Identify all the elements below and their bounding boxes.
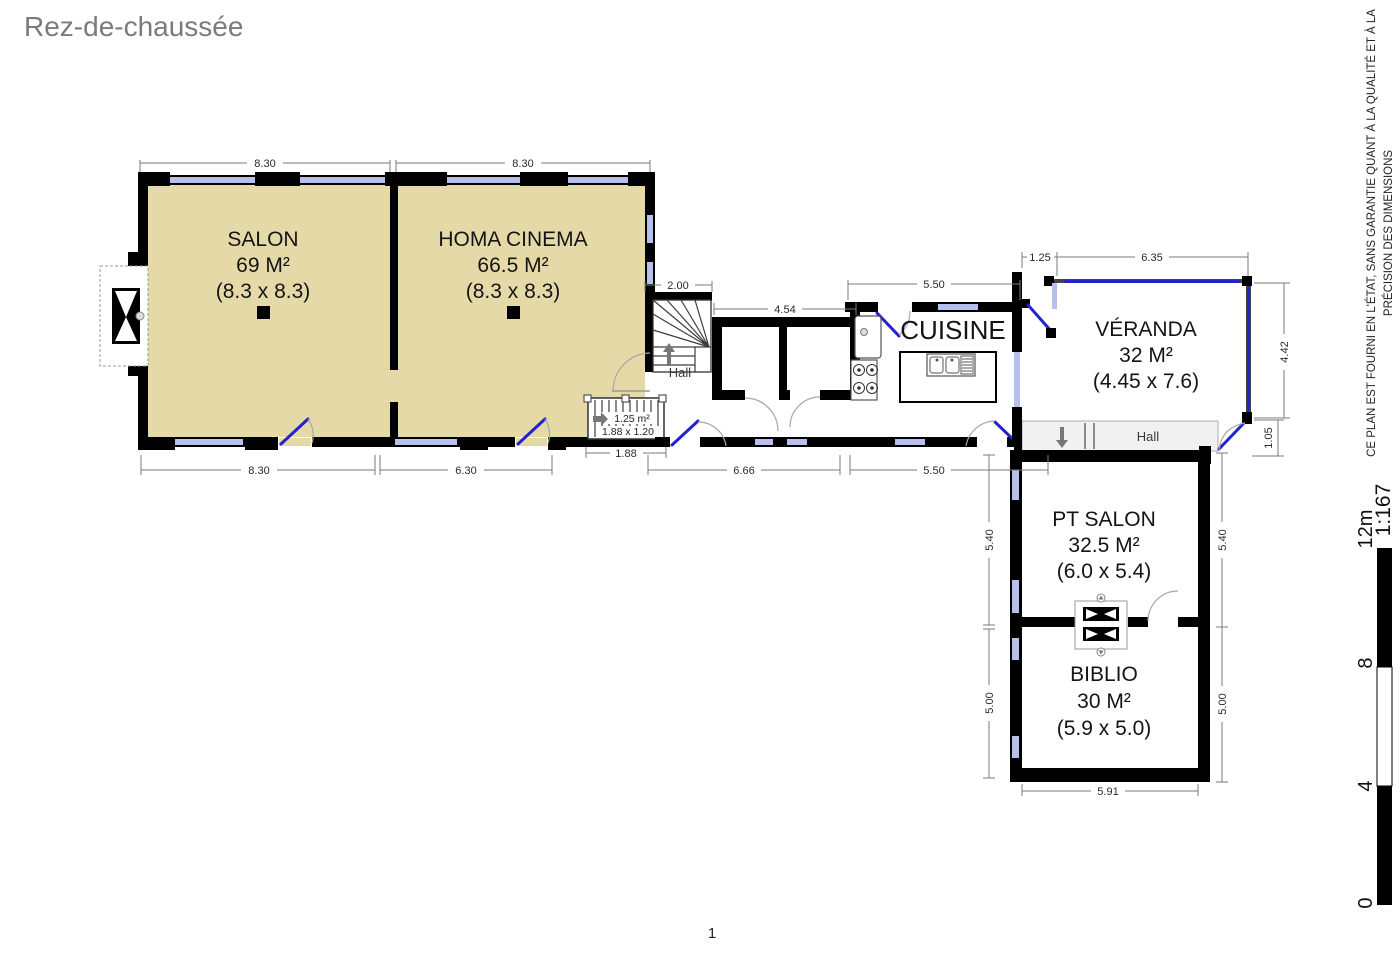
dim-veranda-top: 6.35 [1141,252,1162,264]
door-arc-pt-salon [1148,591,1178,621]
room-area-homa-cinema: 66.5 M² [477,254,548,277]
scale-tick-0: 0 [1355,897,1377,908]
dim-biblio-bottom: 5.91 [1097,786,1118,798]
salon-marker [257,306,270,319]
room-area-biblio: 30 M² [1077,690,1131,713]
disclaimer-line2: PRÉCISION DES DIMENSIONS [1382,150,1395,316]
center-closets [712,317,860,431]
window [938,304,978,310]
dim-corridor-left: 6.66 [733,465,754,477]
dim-closets-width: 4.54 [774,304,795,316]
scale-tick-4: 4 [1355,780,1377,791]
room-label-pt-salon: PT SALON [1052,508,1155,531]
disclaimer-line1: CE PLAN EST FOURNI EN L'ÉTAT, SANS GARAN… [1365,9,1378,457]
cuisine: CUISINE [845,302,1022,447]
dim-veranda-right: 4.42 [1279,341,1291,362]
window [1012,580,1019,613]
hall-right-label: Hall [1137,429,1160,444]
window [755,439,773,445]
dim-pt-salon-right: 5.40 [1217,529,1229,550]
dim-hall-right-h: 1.05 [1263,427,1275,448]
dim-veranda-offset: 1.25 [1029,252,1050,264]
door-arc-closet-right [790,397,820,427]
biblio: BIBLIO 30 M² (5.9 x 5.0) [1010,627,1210,782]
fridge-icon [855,316,881,358]
dim-pt-salon-left: 5.40 [984,529,996,550]
floor-plan-page: Rez-de-chaussée [0,0,1400,953]
scale-ratio: 1:167 [1372,484,1395,537]
window [568,177,628,183]
room-area-pt-salon: 32.5 M² [1068,534,1139,557]
door-veranda [1022,299,1056,338]
room-area-veranda: 32 M² [1119,344,1173,367]
stove-icon [851,360,878,400]
main-building: SALON 69 M² (8.3 x 8.3) HOMA CINEMA 66.5… [100,172,666,450]
window [1052,283,1057,309]
window [447,177,520,183]
dim-cinema-bottom: 6.30 [455,465,476,477]
dim-salon-bottom: 8.30 [248,465,269,477]
cinema-marker [507,306,520,319]
window [647,215,653,243]
window [170,177,255,183]
veranda: VÉRANDA 32 M² (4.45 x 7.6) [1012,272,1252,424]
window [895,439,925,445]
fireplace-salon [100,266,148,366]
room-label-homa-cinema: HOMA CINEMA [438,228,587,251]
dim-biblio-right: 5.00 [1217,693,1229,714]
door-arc-closet-left [745,398,778,431]
window [1012,638,1019,660]
fireplace-double [1075,594,1127,656]
page-title: Rez-de-chaussée [24,11,243,42]
dim-kitchen-top: 5.50 [923,279,944,291]
dim-salon-top: 8.30 [254,158,275,170]
dim-stair-width: 2.00 [667,280,688,292]
closet-area: 1.25 m² [614,413,650,425]
kitchen-island [900,352,996,402]
window [395,439,457,445]
dim-corridor-right: 5.50 [923,465,944,477]
closet-125: 1.25 m² 1.88 x 1.20 [584,395,666,439]
corridor [655,421,1022,447]
window [1014,352,1020,407]
room-label-biblio: BIBLIO [1070,663,1138,686]
room-label-veranda: VÉRANDA [1095,318,1197,341]
window [647,262,653,284]
room-size-biblio: (5.9 x 5.0) [1057,717,1152,740]
room-area-salon: 69 M² [236,254,290,277]
disclaimer: CE PLAN EST FOURNI EN L'ÉTAT, SANS GARAN… [1365,9,1395,457]
page-number: 1 [708,925,716,942]
scale-bar: 12m 1:167 8 4 0 [1355,484,1395,909]
hall-main-label: Hall [669,365,692,380]
window [787,439,807,445]
window [1012,470,1019,500]
window [175,439,243,445]
room-size-pt-salon: (6.0 x 5.4) [1057,560,1152,583]
staircase [653,300,711,372]
room-label-salon: SALON [227,228,298,251]
dim-closet-bottom: 1.88 [615,448,636,460]
room-size-homa-cinema: (8.3 x 8.3) [466,280,561,303]
window [300,177,385,183]
room-size-veranda: (4.45 x 7.6) [1093,370,1199,393]
room-size-salon: (8.3 x 8.3) [216,280,311,303]
pt-salon: PT SALON 32.5 M² (6.0 x 5.4) [1010,450,1210,656]
dim-biblio-left: 5.00 [984,692,996,713]
room-label-cuisine: CUISINE [900,315,1005,345]
window [1012,736,1019,758]
scale-tick-8: 8 [1355,657,1377,668]
closet-size: 1.88 x 1.20 [602,426,654,438]
dim-cinema-top: 8.30 [512,158,533,170]
